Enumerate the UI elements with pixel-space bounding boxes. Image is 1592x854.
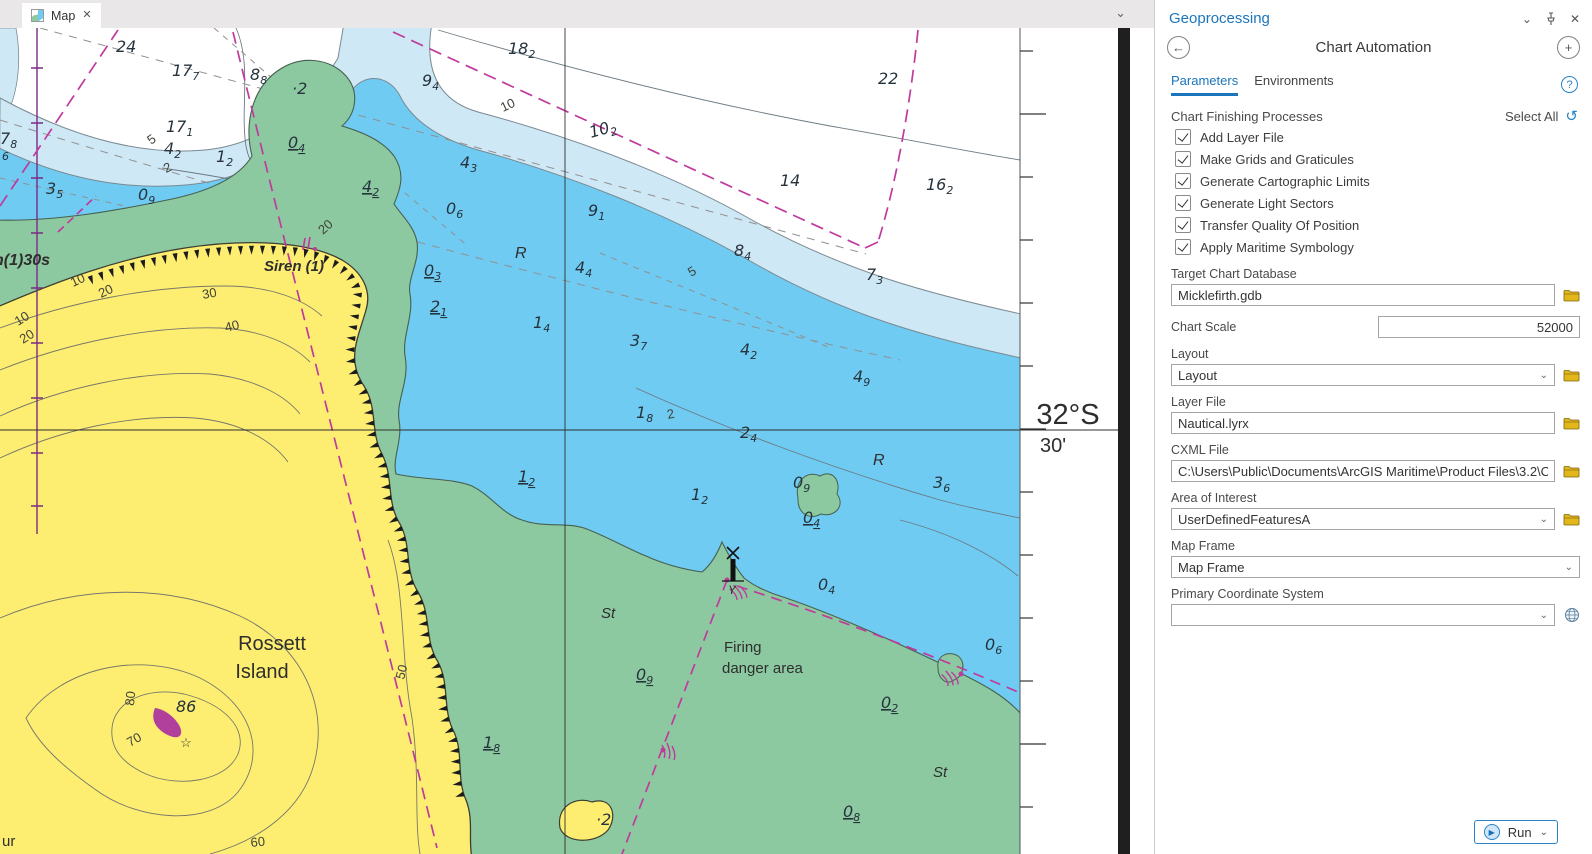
help-icon[interactable]: ?: [1561, 76, 1578, 93]
checkbox[interactable]: [1175, 129, 1191, 145]
place-label: Rossett: [238, 633, 306, 655]
map-frame-combobox[interactable]: Map Frame ⌄: [1171, 556, 1580, 578]
tab-map-label: Map: [51, 9, 75, 23]
tool-title: Chart Automation: [1190, 39, 1557, 56]
nautical-chart-svg: 2417788·29418222171781021416235421209044…: [0, 28, 1154, 854]
layer-file-input[interactable]: [1171, 412, 1555, 434]
place-label: Y: [728, 583, 737, 597]
place-label: Siren (1): [264, 258, 324, 275]
field-layer-file: Layer File: [1171, 395, 1580, 434]
sounding-label: ·2: [596, 810, 611, 829]
checkbox[interactable]: [1175, 239, 1191, 255]
place-label: R: [515, 245, 527, 262]
sounding-label: 14: [780, 171, 800, 190]
browse-folder-icon[interactable]: [1563, 289, 1580, 302]
pin-icon[interactable]: [1545, 12, 1557, 26]
reset-icon[interactable]: ↺: [1565, 109, 1578, 124]
process-row[interactable]: Generate Cartographic Limits: [1155, 170, 1592, 192]
panel-header: Geoprocessing ⌄ ✕: [1155, 0, 1592, 31]
field-label: Primary Coordinate System: [1171, 587, 1580, 601]
process-row[interactable]: Transfer Quality Of Position: [1155, 214, 1592, 236]
place-label: danger area: [722, 660, 804, 677]
process-row[interactable]: Generate Light Sectors: [1155, 192, 1592, 214]
contour-label: 80: [122, 691, 138, 707]
place-label: ur: [2, 833, 15, 850]
processes-label: Chart Finishing Processes: [1171, 109, 1505, 124]
back-button[interactable]: ←: [1167, 36, 1190, 59]
checkbox-label: Generate Light Sectors: [1200, 196, 1334, 211]
layout-combobox-value: Layout: [1178, 368, 1540, 383]
field-label: CXML File: [1171, 443, 1580, 457]
checkbox-label: Add Layer File: [1200, 130, 1284, 145]
primary-coordinate-system-combobox[interactable]: ⌄: [1171, 604, 1555, 626]
checkbox[interactable]: [1175, 195, 1191, 211]
tool-header: ← Chart Automation +: [1155, 31, 1592, 64]
geoprocessing-panel: Geoprocessing ⌄ ✕ ← Chart Automation + P…: [1154, 0, 1592, 854]
tab-map[interactable]: Map ✕: [22, 3, 101, 28]
tab-close-icon[interactable]: ✕: [82, 10, 91, 21]
target-chart-database-input[interactable]: [1171, 284, 1555, 306]
arcgis-pro-window: Map ✕ ⌄: [0, 0, 1592, 854]
place-label: Firing: [724, 639, 762, 656]
tab-environments[interactable]: Environments: [1254, 73, 1333, 96]
field-layout: Layout Layout ⌄: [1171, 347, 1580, 386]
field-target-chart-database: Target Chart Database: [1171, 267, 1580, 306]
run-button-label: Run: [1508, 825, 1532, 840]
checkbox[interactable]: [1175, 173, 1191, 189]
field-label: Target Chart Database: [1171, 267, 1580, 281]
sounding-label: 86: [176, 697, 196, 716]
panel-menu-chevron-icon[interactable]: ⌄: [1522, 12, 1532, 26]
place-label: ☆: [180, 735, 192, 750]
checkbox[interactable]: [1175, 151, 1191, 167]
place-label: St: [601, 605, 616, 622]
place-label: 32°S: [1036, 399, 1099, 431]
sounding-label: ·2: [292, 79, 307, 98]
processes-section-header: Chart Finishing Processes Select All ↺: [1171, 109, 1578, 124]
map-view-pane: Map ✕ ⌄: [0, 0, 1154, 854]
tab-parameters[interactable]: Parameters: [1171, 73, 1238, 96]
browse-folder-icon[interactable]: [1563, 513, 1580, 526]
browse-folder-icon[interactable]: [1563, 417, 1580, 430]
add-to-model-button[interactable]: +: [1557, 36, 1580, 59]
select-all-link[interactable]: Select All: [1505, 109, 1558, 124]
tab-overflow-chevron-icon[interactable]: ⌄: [1115, 5, 1126, 21]
run-play-icon: ▶: [1484, 824, 1500, 840]
process-row[interactable]: Apply Maritime Symbology: [1155, 236, 1592, 258]
panel-title: Geoprocessing: [1169, 10, 1522, 27]
panel-close-icon[interactable]: ✕: [1570, 12, 1580, 26]
field-label: Area of Interest: [1171, 491, 1580, 505]
place-label: Island: [235, 661, 288, 683]
process-row[interactable]: Make Grids and Graticules: [1155, 148, 1592, 170]
nautical-chart-canvas[interactable]: 2417788·29418222171781021416235421209044…: [0, 28, 1154, 854]
field-label: Layer File: [1171, 395, 1580, 409]
checkbox-label: Transfer Quality Of Position: [1200, 218, 1359, 233]
field-label: Layout: [1171, 347, 1580, 361]
place-label: R: [873, 452, 885, 469]
layout-combobox[interactable]: Layout ⌄: [1171, 364, 1555, 386]
map-frame-value: Map Frame: [1178, 560, 1565, 575]
chevron-down-icon: ⌄: [1540, 610, 1548, 621]
chevron-down-icon: ⌄: [1540, 514, 1548, 525]
run-button[interactable]: ▶ Run ⌄: [1474, 820, 1558, 844]
area-of-interest-value: UserDefinedFeaturesA: [1178, 512, 1540, 527]
process-row[interactable]: Add Layer File: [1155, 126, 1592, 148]
field-cxml-file: CXML File: [1171, 443, 1580, 482]
view-tab-bar: Map ✕ ⌄: [0, 0, 1154, 28]
globe-icon[interactable]: [1563, 607, 1580, 623]
cxml-file-input[interactable]: [1171, 460, 1555, 482]
field-chart-scale: Chart Scale: [1171, 316, 1580, 338]
process-list: Add Layer FileMake Grids and GraticulesG…: [1155, 126, 1592, 258]
sounding-label: 6: [2, 150, 9, 163]
chevron-down-icon: ⌄: [1565, 562, 1573, 573]
map-tab-icon: [31, 9, 44, 22]
contour-label: 30: [201, 285, 218, 302]
field-label: Chart Scale: [1171, 320, 1378, 334]
chevron-down-icon: ⌄: [1540, 370, 1548, 381]
checkbox-label: Generate Cartographic Limits: [1200, 174, 1370, 189]
place-label: 30': [1040, 435, 1066, 457]
place-label: St: [933, 764, 948, 781]
chart-border-band: [1118, 28, 1130, 854]
field-area-of-interest: Area of Interest UserDefinedFeaturesA ⌄: [1171, 491, 1580, 530]
place-label: n(1)30s: [0, 252, 50, 269]
sounding-label: 22: [878, 69, 898, 88]
browse-folder-icon[interactable]: [1563, 369, 1580, 382]
chart-scale-input[interactable]: [1378, 316, 1580, 338]
panel-tabs: Parameters Environments ?: [1155, 64, 1592, 96]
field-map-frame: Map Frame Map Frame ⌄: [1171, 539, 1580, 578]
contour-label: 60: [250, 834, 266, 850]
checkbox-label: Apply Maritime Symbology: [1200, 240, 1354, 255]
sounding-label: 24: [116, 37, 136, 56]
area-of-interest-combobox[interactable]: UserDefinedFeaturesA ⌄: [1171, 508, 1555, 530]
checkbox-label: Make Grids and Graticules: [1200, 152, 1354, 167]
checkbox[interactable]: [1175, 217, 1191, 233]
browse-folder-icon[interactable]: [1563, 465, 1580, 478]
run-options-chevron-icon[interactable]: ⌄: [1540, 827, 1548, 838]
field-label: Map Frame: [1171, 539, 1580, 553]
field-primary-coordinate-system: Primary Coordinate System ⌄: [1171, 587, 1580, 626]
